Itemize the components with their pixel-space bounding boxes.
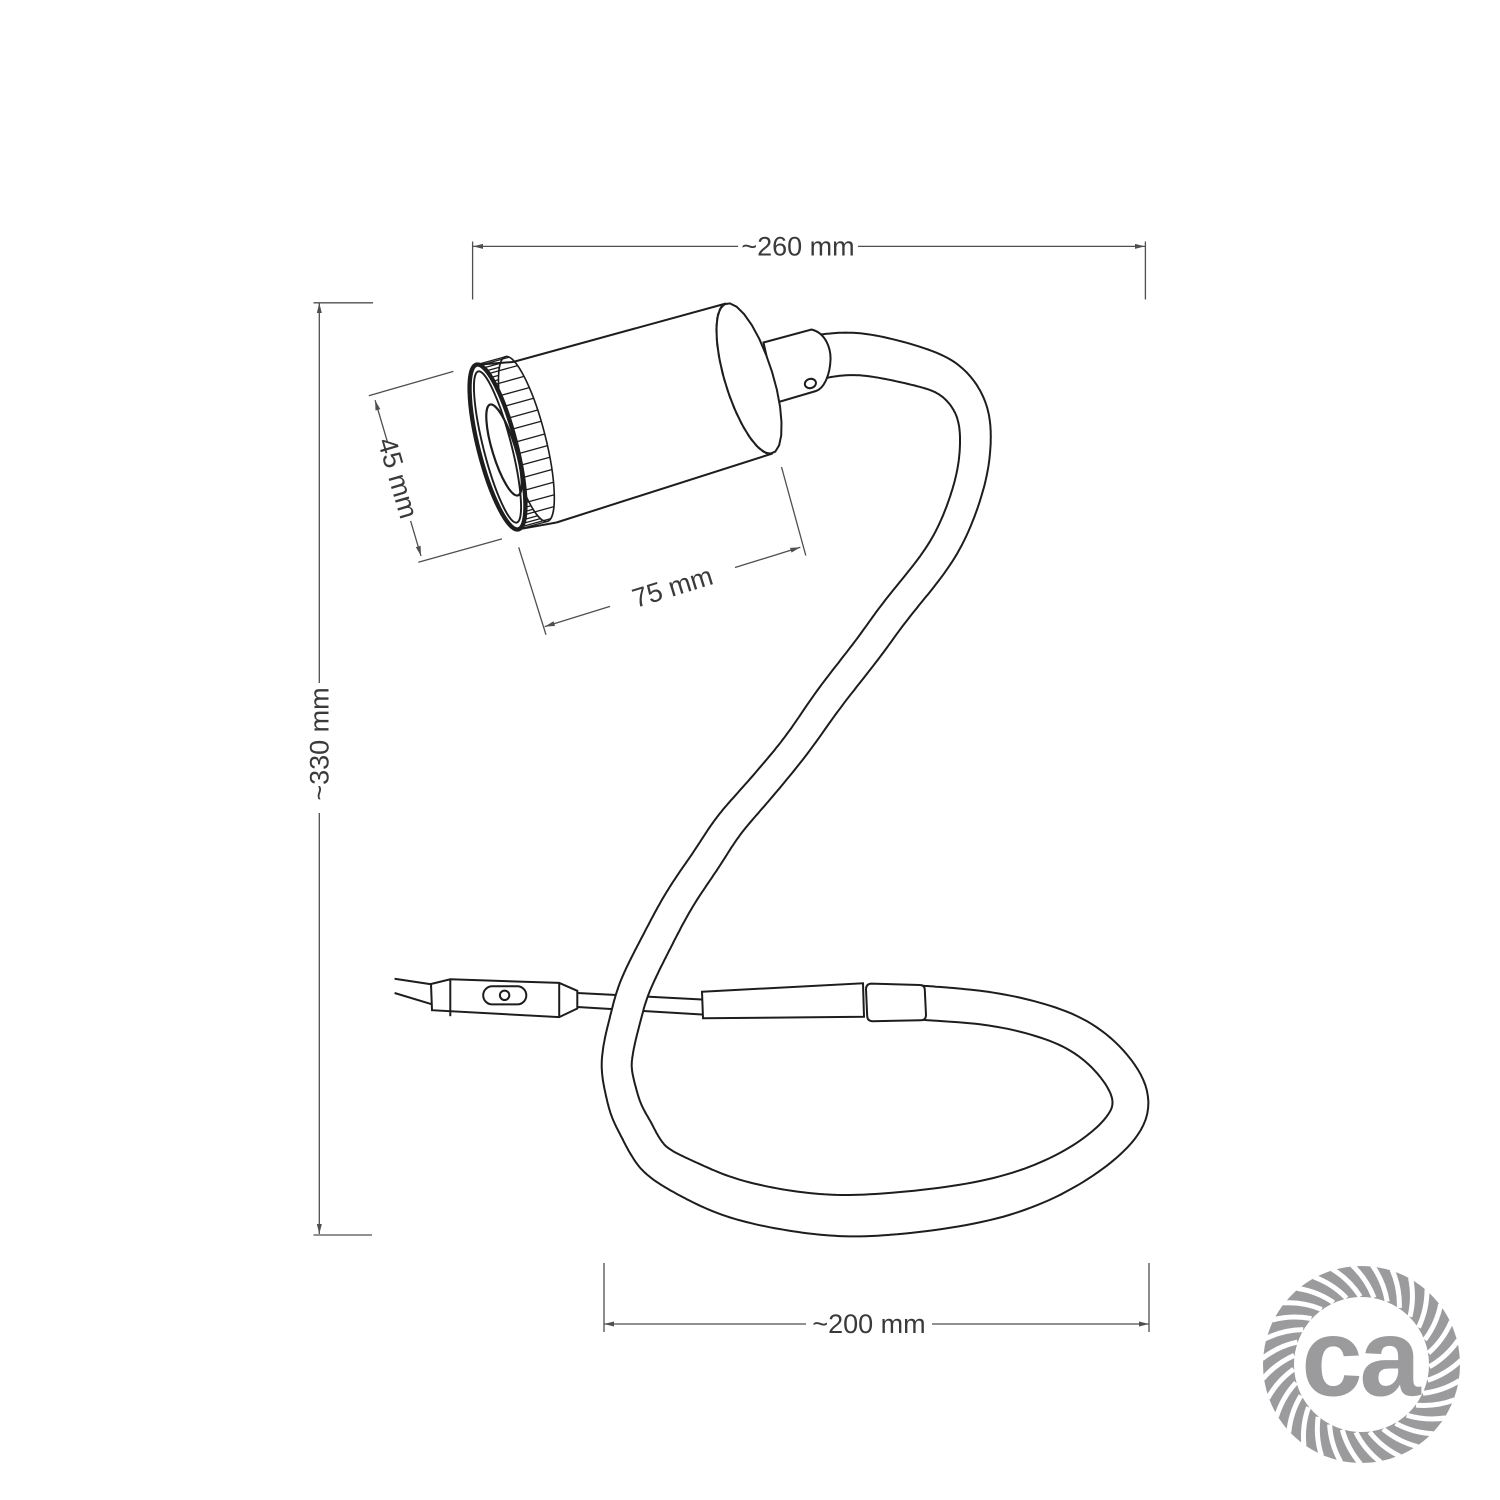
svg-text:~330 mm: ~330 mm (305, 687, 335, 800)
svg-text:~260 mm: ~260 mm (741, 232, 854, 262)
svg-text:ca: ca (1301, 1297, 1421, 1420)
svg-text:~200 mm: ~200 mm (812, 1309, 925, 1339)
